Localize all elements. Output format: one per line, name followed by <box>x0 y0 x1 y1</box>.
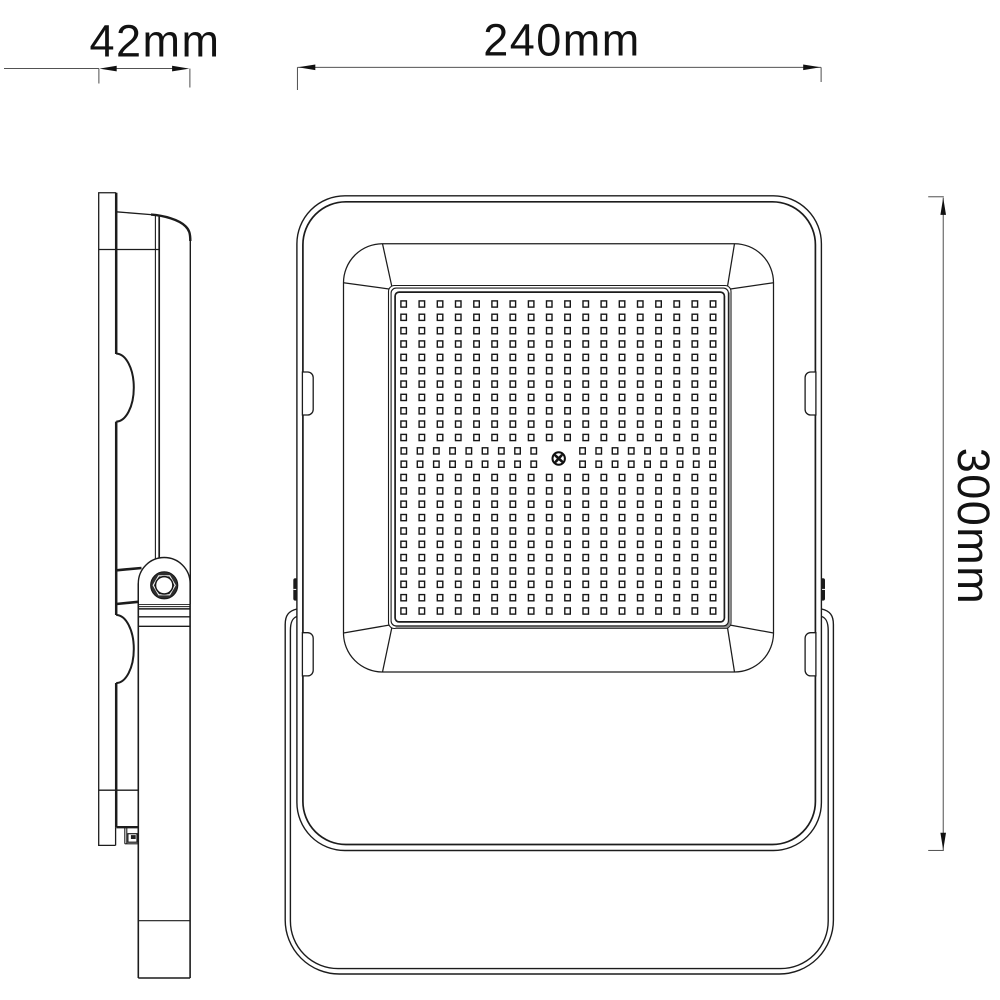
svg-text:240mm: 240mm <box>483 15 641 66</box>
svg-text:42mm: 42mm <box>89 16 220 67</box>
svg-text:300mm: 300mm <box>948 448 999 606</box>
